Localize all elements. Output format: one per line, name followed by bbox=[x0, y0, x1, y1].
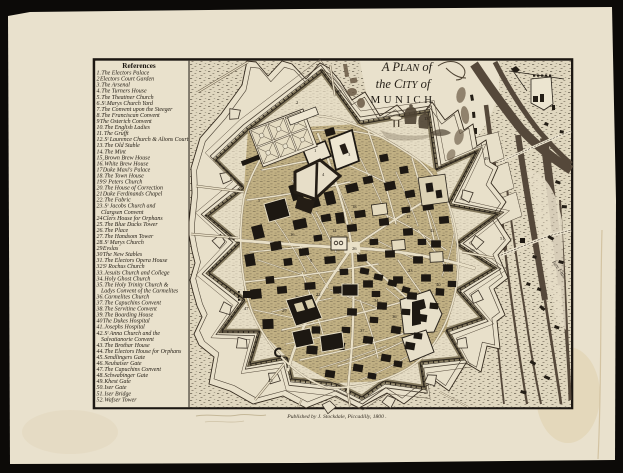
svg-text:34.Holy Ghost Church: 34.Holy Ghost Church bbox=[96, 276, 151, 282]
svg-text:17Duke Maxi's Palace: 17Duke Maxi's Palace bbox=[97, 167, 151, 173]
svg-text:2Electors Court Garden: 2Electors Court Garden bbox=[97, 77, 155, 83]
svg-text:49: 49 bbox=[484, 156, 489, 161]
svg-text:46: 46 bbox=[228, 236, 233, 241]
svg-text:18: 18 bbox=[352, 204, 357, 209]
svg-text:51: 51 bbox=[500, 236, 505, 241]
svg-text:30: 30 bbox=[330, 346, 335, 351]
svg-text:42: 42 bbox=[430, 228, 435, 233]
svg-text:39.The Boarding House: 39.The Boarding House bbox=[96, 313, 154, 319]
svg-text:Published by J. Stockdale, Pic: Published by J. Stockdale, Piccadilly, 1… bbox=[286, 414, 386, 420]
svg-text:15,Brown Brew House: 15,Brown Brew House bbox=[97, 155, 151, 161]
svg-text:29: 29 bbox=[282, 308, 287, 313]
svg-text:28.Sᵗ Marys Church: 28.Sᵗ Marys Church bbox=[97, 240, 144, 246]
svg-text:13.The Old Stable: 13.The Old Stable bbox=[97, 143, 141, 149]
svg-text:48.Schwabinger Gate: 48.Schwabinger Gate bbox=[97, 373, 149, 379]
svg-text:50.Iser Gate: 50.Iser Gate bbox=[97, 385, 127, 391]
svg-text:17: 17 bbox=[406, 214, 411, 219]
svg-text:52.Wafser Tower: 52.Wafser Tower bbox=[97, 396, 138, 403]
svg-text:49: 49 bbox=[337, 89, 342, 94]
svg-text:20.The House of Correction: 20.The House of Correction bbox=[97, 185, 163, 192]
svg-text:23.Sᵗ Jacobs Church and: 23.Sᵗ Jacobs Church and bbox=[97, 204, 156, 210]
svg-text:26.The Place: 26.The Place bbox=[97, 228, 129, 234]
svg-text:41.Josephs Hospital: 41.Josephs Hospital bbox=[97, 325, 146, 331]
svg-text:Ladys Convent of the Carmelite: Ladys Convent of the Carmelites bbox=[100, 287, 179, 294]
svg-text:40: 40 bbox=[436, 282, 441, 287]
svg-text:32Sᵗ Rochus Church: 32Sᵗ Rochus Church bbox=[96, 264, 145, 270]
svg-text:36: 36 bbox=[392, 314, 397, 319]
svg-text:47: 47 bbox=[244, 306, 249, 311]
svg-text:46.Neuhaiser Gate: 46.Neuhaiser Gate bbox=[97, 361, 142, 367]
svg-text:37.The Capuchins Convent: 37.The Capuchins Convent bbox=[96, 301, 162, 307]
svg-text:34: 34 bbox=[374, 298, 379, 303]
svg-text:16: 16 bbox=[290, 232, 295, 237]
svg-text:19Sᵗ Peters Church: 19Sᵗ Peters Church bbox=[97, 180, 143, 186]
svg-text:48: 48 bbox=[238, 182, 243, 187]
svg-text:10.The English Ladies: 10.The English Ladies bbox=[97, 125, 151, 131]
svg-text:MUNICH: MUNICH bbox=[370, 94, 435, 106]
svg-text:References: References bbox=[122, 62, 156, 70]
svg-text:28: 28 bbox=[368, 240, 373, 245]
svg-text:21Duke Ferdinands Chapel: 21Duke Ferdinands Chapel bbox=[97, 192, 163, 198]
svg-text:37: 37 bbox=[360, 328, 365, 333]
svg-text:12: 12 bbox=[384, 186, 389, 191]
svg-text:24Clers House for Orphans: 24Clers House for Orphans bbox=[97, 215, 164, 222]
svg-text:8.The Franciscan Convent: 8.The Franciscan Convent bbox=[97, 113, 161, 119]
svg-text:4.The Turners House: 4.The Turners House bbox=[97, 89, 147, 95]
svg-text:50: 50 bbox=[470, 248, 475, 253]
svg-text:Salvatianorie Convent: Salvatianorie Convent bbox=[101, 337, 154, 343]
svg-text:13: 13 bbox=[424, 116, 429, 121]
svg-text:22: 22 bbox=[316, 292, 321, 297]
svg-text:44.The Electors House for Orph: 44.The Electors House for Orphans bbox=[97, 348, 182, 355]
svg-text:A PLAN of: A PLAN of bbox=[381, 60, 434, 74]
svg-text:the CITY of: the CITY of bbox=[376, 77, 432, 91]
svg-text:26: 26 bbox=[352, 246, 357, 251]
svg-text:30The New Stables: 30The New Stables bbox=[96, 252, 143, 258]
svg-text:11.The Grufft: 11.The Grufft bbox=[97, 130, 130, 137]
svg-text:14: 14 bbox=[332, 228, 337, 233]
svg-text:45: 45 bbox=[268, 378, 273, 383]
svg-text:45: 45 bbox=[286, 364, 291, 369]
svg-text:33: 33 bbox=[408, 268, 413, 273]
svg-text:6.Sᵗ.Marys Church Yard: 6.Sᵗ.Marys Church Yard bbox=[97, 101, 154, 107]
